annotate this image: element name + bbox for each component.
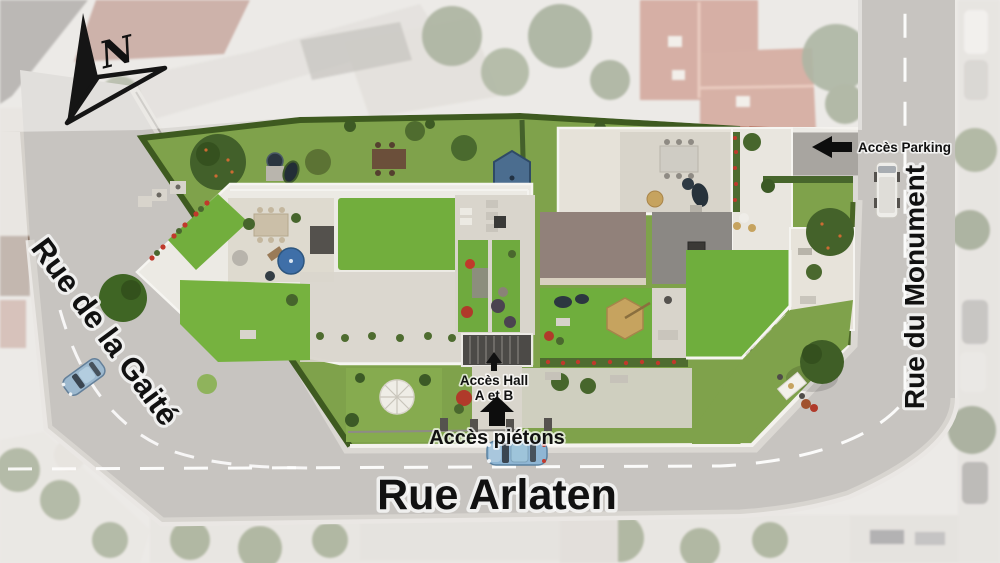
lounger [240,330,256,339]
round-rug [498,287,508,297]
small-pond [265,271,275,281]
red-shrub [544,331,554,341]
chair [777,374,783,380]
tan-parasol [647,191,663,207]
shrub [355,373,365,383]
planter-box [610,375,628,383]
planter-tree [743,133,761,151]
shrub [454,404,464,414]
planter-box [545,372,561,380]
roof-a-dark [310,226,334,254]
terrace-a-table [254,214,288,236]
pouf [733,222,741,230]
round-rug-dark [504,316,516,328]
pond [554,296,572,308]
chair [799,393,805,399]
terrace-b-northeast [732,128,792,258]
garden-dining-table [372,149,406,169]
garden-tree [405,121,425,141]
flower-bush [801,399,811,409]
pond [575,294,589,304]
roof-lawn-a-top [338,198,458,270]
shrub [345,413,359,427]
white-van-monument [874,162,900,218]
pergola-couch [472,268,488,298]
bench [800,296,816,304]
parking-access-label: Accès Parking [858,140,951,155]
street-label-arlaten: Rue Arlaten [377,471,617,519]
shrub [419,374,431,386]
driveway-hedge [763,176,853,183]
shrub [761,179,775,193]
fire-pit [494,216,506,228]
bench [798,248,812,255]
shrub [556,337,564,345]
roof-b-cream-edge [540,278,646,285]
round-rug [232,250,248,266]
planter-tree [291,213,301,223]
central-courtyard [455,195,535,366]
street-label-monument: Rue du Monument [899,165,930,409]
red-shrub [456,390,472,406]
lounger [556,318,570,326]
terrace-b-dining-table [660,146,698,172]
small-tree [197,374,217,394]
hall-access-label-line1: Accès Hall [460,373,528,388]
bench [658,330,678,340]
parasol-spokes [380,380,414,414]
shrub [286,294,298,306]
red-shrub [465,259,475,269]
pouf [748,224,756,232]
planter-tree [243,218,255,230]
hex-parasol-tan [607,298,643,339]
shrub [508,250,516,258]
round-rug-dark [491,299,505,313]
red-shrub [461,306,473,318]
flower-bush [810,404,818,412]
garden-tree [305,149,331,175]
planter-tree [580,378,596,394]
roof-b-taupe [540,212,646,284]
planter [664,296,672,304]
paver-pad [266,166,284,181]
round-table [739,213,749,223]
garden-tree [451,135,477,161]
lounger [460,218,472,225]
fruit-tree [190,134,246,190]
pedestrian-access-label: Accès piétons [429,427,565,449]
lounger [460,208,472,215]
east-edge-tree [806,208,854,256]
planter-tree [806,264,822,280]
round-pond [682,178,694,190]
site-plan-map: N Accès Parking Accès Hall A et B Accès … [0,0,1000,563]
